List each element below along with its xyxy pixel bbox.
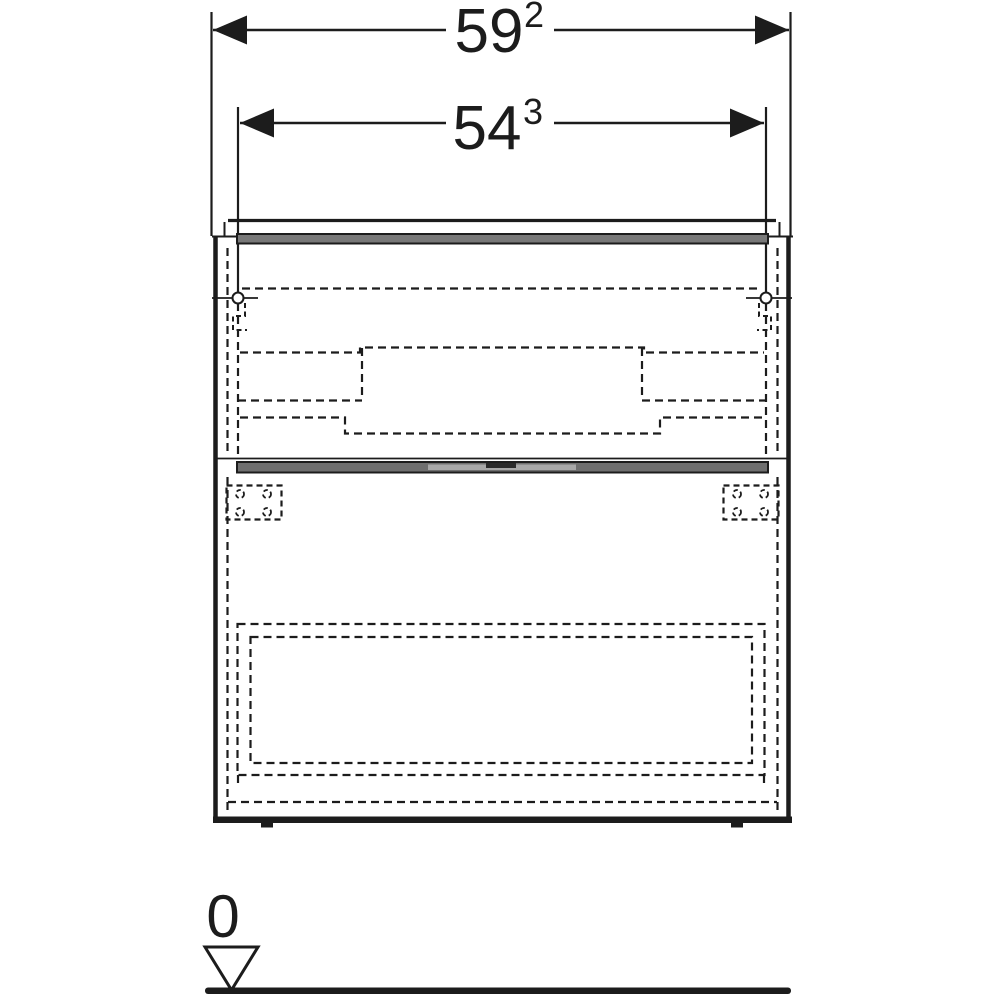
technical-drawing-canvas: 59 2 54 3 (0, 0, 1000, 1000)
arrow-left-icon (240, 109, 274, 138)
level-triangle-icon (205, 947, 258, 990)
mounting-screw-right-icon (761, 293, 772, 304)
arrow-left-icon (213, 16, 247, 45)
cabinet-body-outline (212, 221, 793, 828)
arrow-right-icon (755, 16, 789, 45)
arrow-right-icon (730, 109, 764, 138)
drilling-width-value: 54 (453, 94, 522, 163)
siphon-cutout-top-edge (240, 348, 764, 353)
siphon-cutout-bottom-edge (240, 418, 764, 434)
cabinet-bottom-edge (213, 817, 792, 824)
overall-width-superscript: 2 (524, 0, 544, 35)
lower-drawer-hidden-lines (228, 477, 778, 812)
floor-level-marker (205, 947, 791, 994)
drawer-gap-notch (486, 463, 516, 468)
floor-level-value: 0 (206, 883, 239, 950)
floor-line (205, 988, 791, 995)
fixing-plate-left (227, 486, 282, 520)
fixing-plate-right (724, 486, 779, 520)
drawer-front-outer-outline (238, 624, 765, 775)
drawer-rail-fixing-plates (227, 486, 779, 520)
drilling-width-superscript: 3 (523, 91, 543, 132)
overall-width-value: 59 (455, 0, 524, 66)
upper-drawer-hidden-lines (228, 248, 778, 454)
mounting-bracket-hidden-lines (233, 303, 771, 330)
mounting-screw-left-icon (233, 293, 244, 304)
cabinet-front-view-drawing: 59 2 54 3 (0, 0, 1000, 1000)
cabinet-foot-left (261, 823, 273, 828)
cabinet-foot-right (731, 823, 743, 828)
top-panel-edge (237, 234, 768, 244)
drawer-front-inner-outline (251, 637, 753, 763)
